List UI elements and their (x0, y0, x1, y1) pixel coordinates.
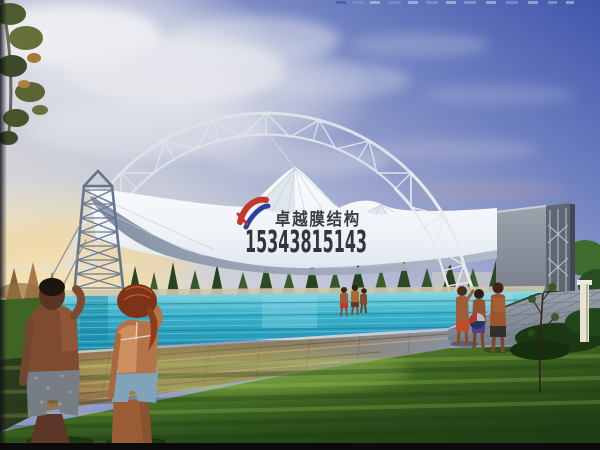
left-dark-edge (0, 0, 7, 450)
bottom-black-bar (0, 443, 600, 450)
scene-canvas: 卓越膜结构 15343815143 (0, 0, 600, 450)
phone-number: 15343815143 (245, 225, 367, 260)
rendered-photo: Architectural rendering of a white tensi… (0, 0, 600, 450)
